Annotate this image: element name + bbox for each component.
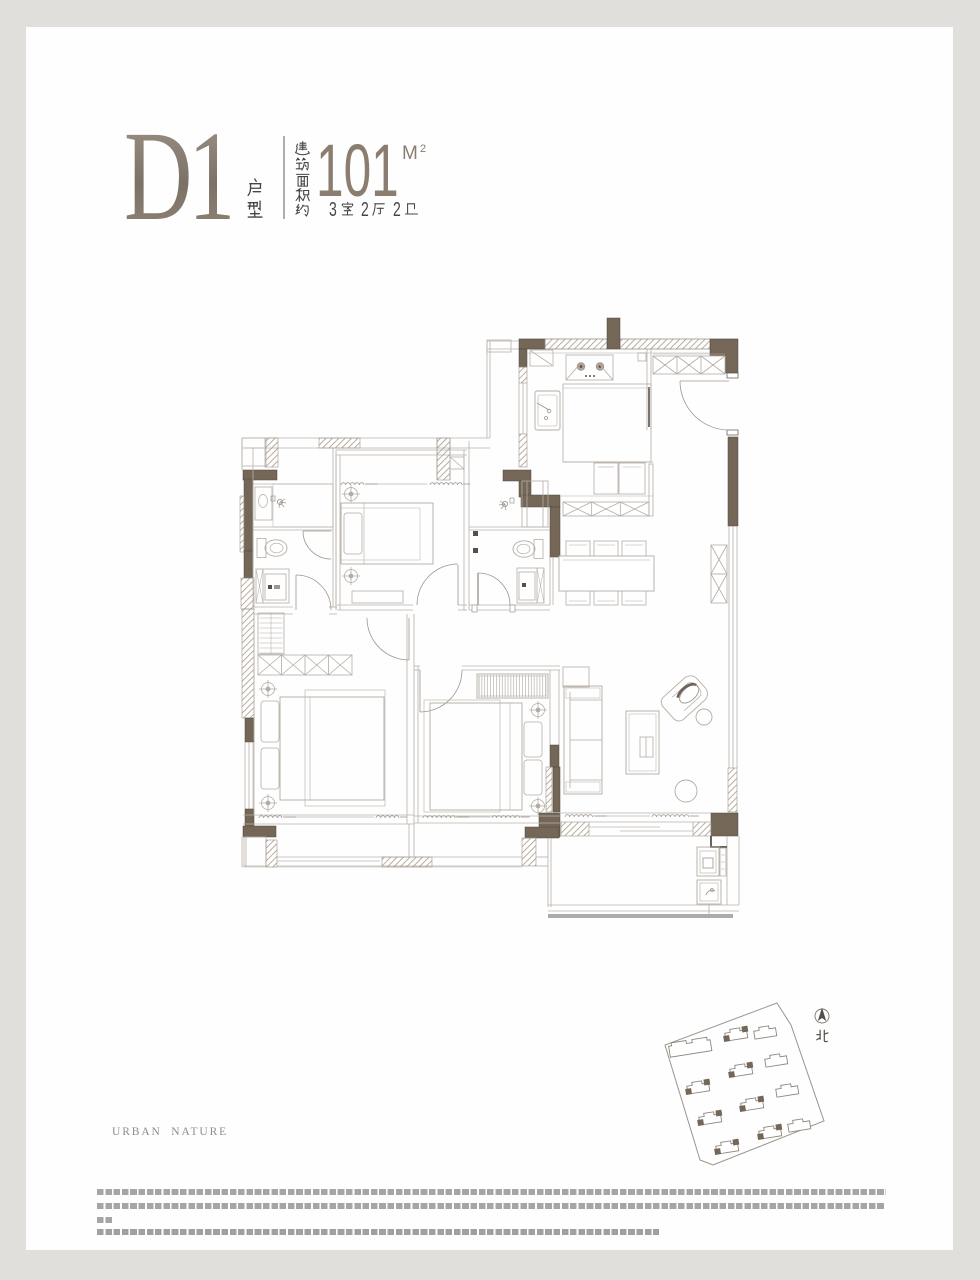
svg-text:2: 2 xyxy=(393,197,401,220)
svg-text:2: 2 xyxy=(361,197,369,220)
svg-text:3: 3 xyxy=(329,197,337,220)
svg-text:D1: D1 xyxy=(124,106,231,247)
svg-text:2: 2 xyxy=(420,143,426,155)
svg-text:M: M xyxy=(402,143,418,164)
